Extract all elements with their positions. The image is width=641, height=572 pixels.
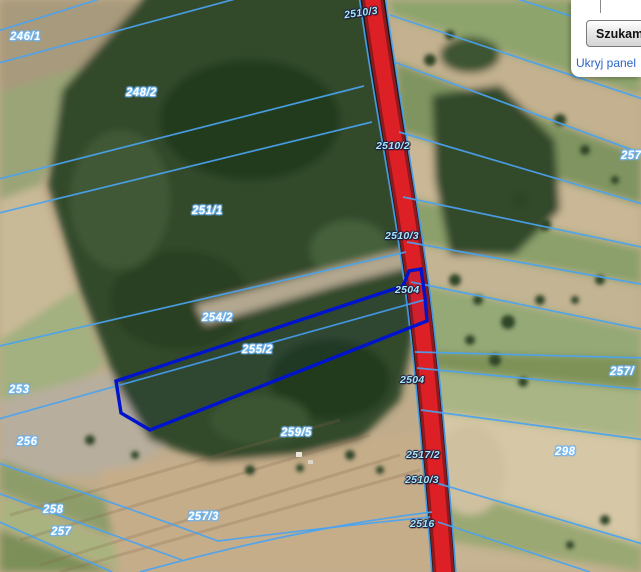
hide-panel-link[interactable]: Ukryj panel <box>576 56 636 70</box>
search-button[interactable]: Szukam <box>586 20 641 47</box>
search-input-fragment[interactable] <box>600 0 601 13</box>
cadastral-layer <box>0 0 641 572</box>
selected-parcel-outline[interactable] <box>116 269 427 430</box>
cadastral-lines <box>0 0 641 572</box>
map-viewport[interactable]: 246/1 248/2 251/1 254/2 255/2 253 256 25… <box>0 0 641 572</box>
search-panel-fragment: Szukam Ukryj panel <box>571 0 641 77</box>
